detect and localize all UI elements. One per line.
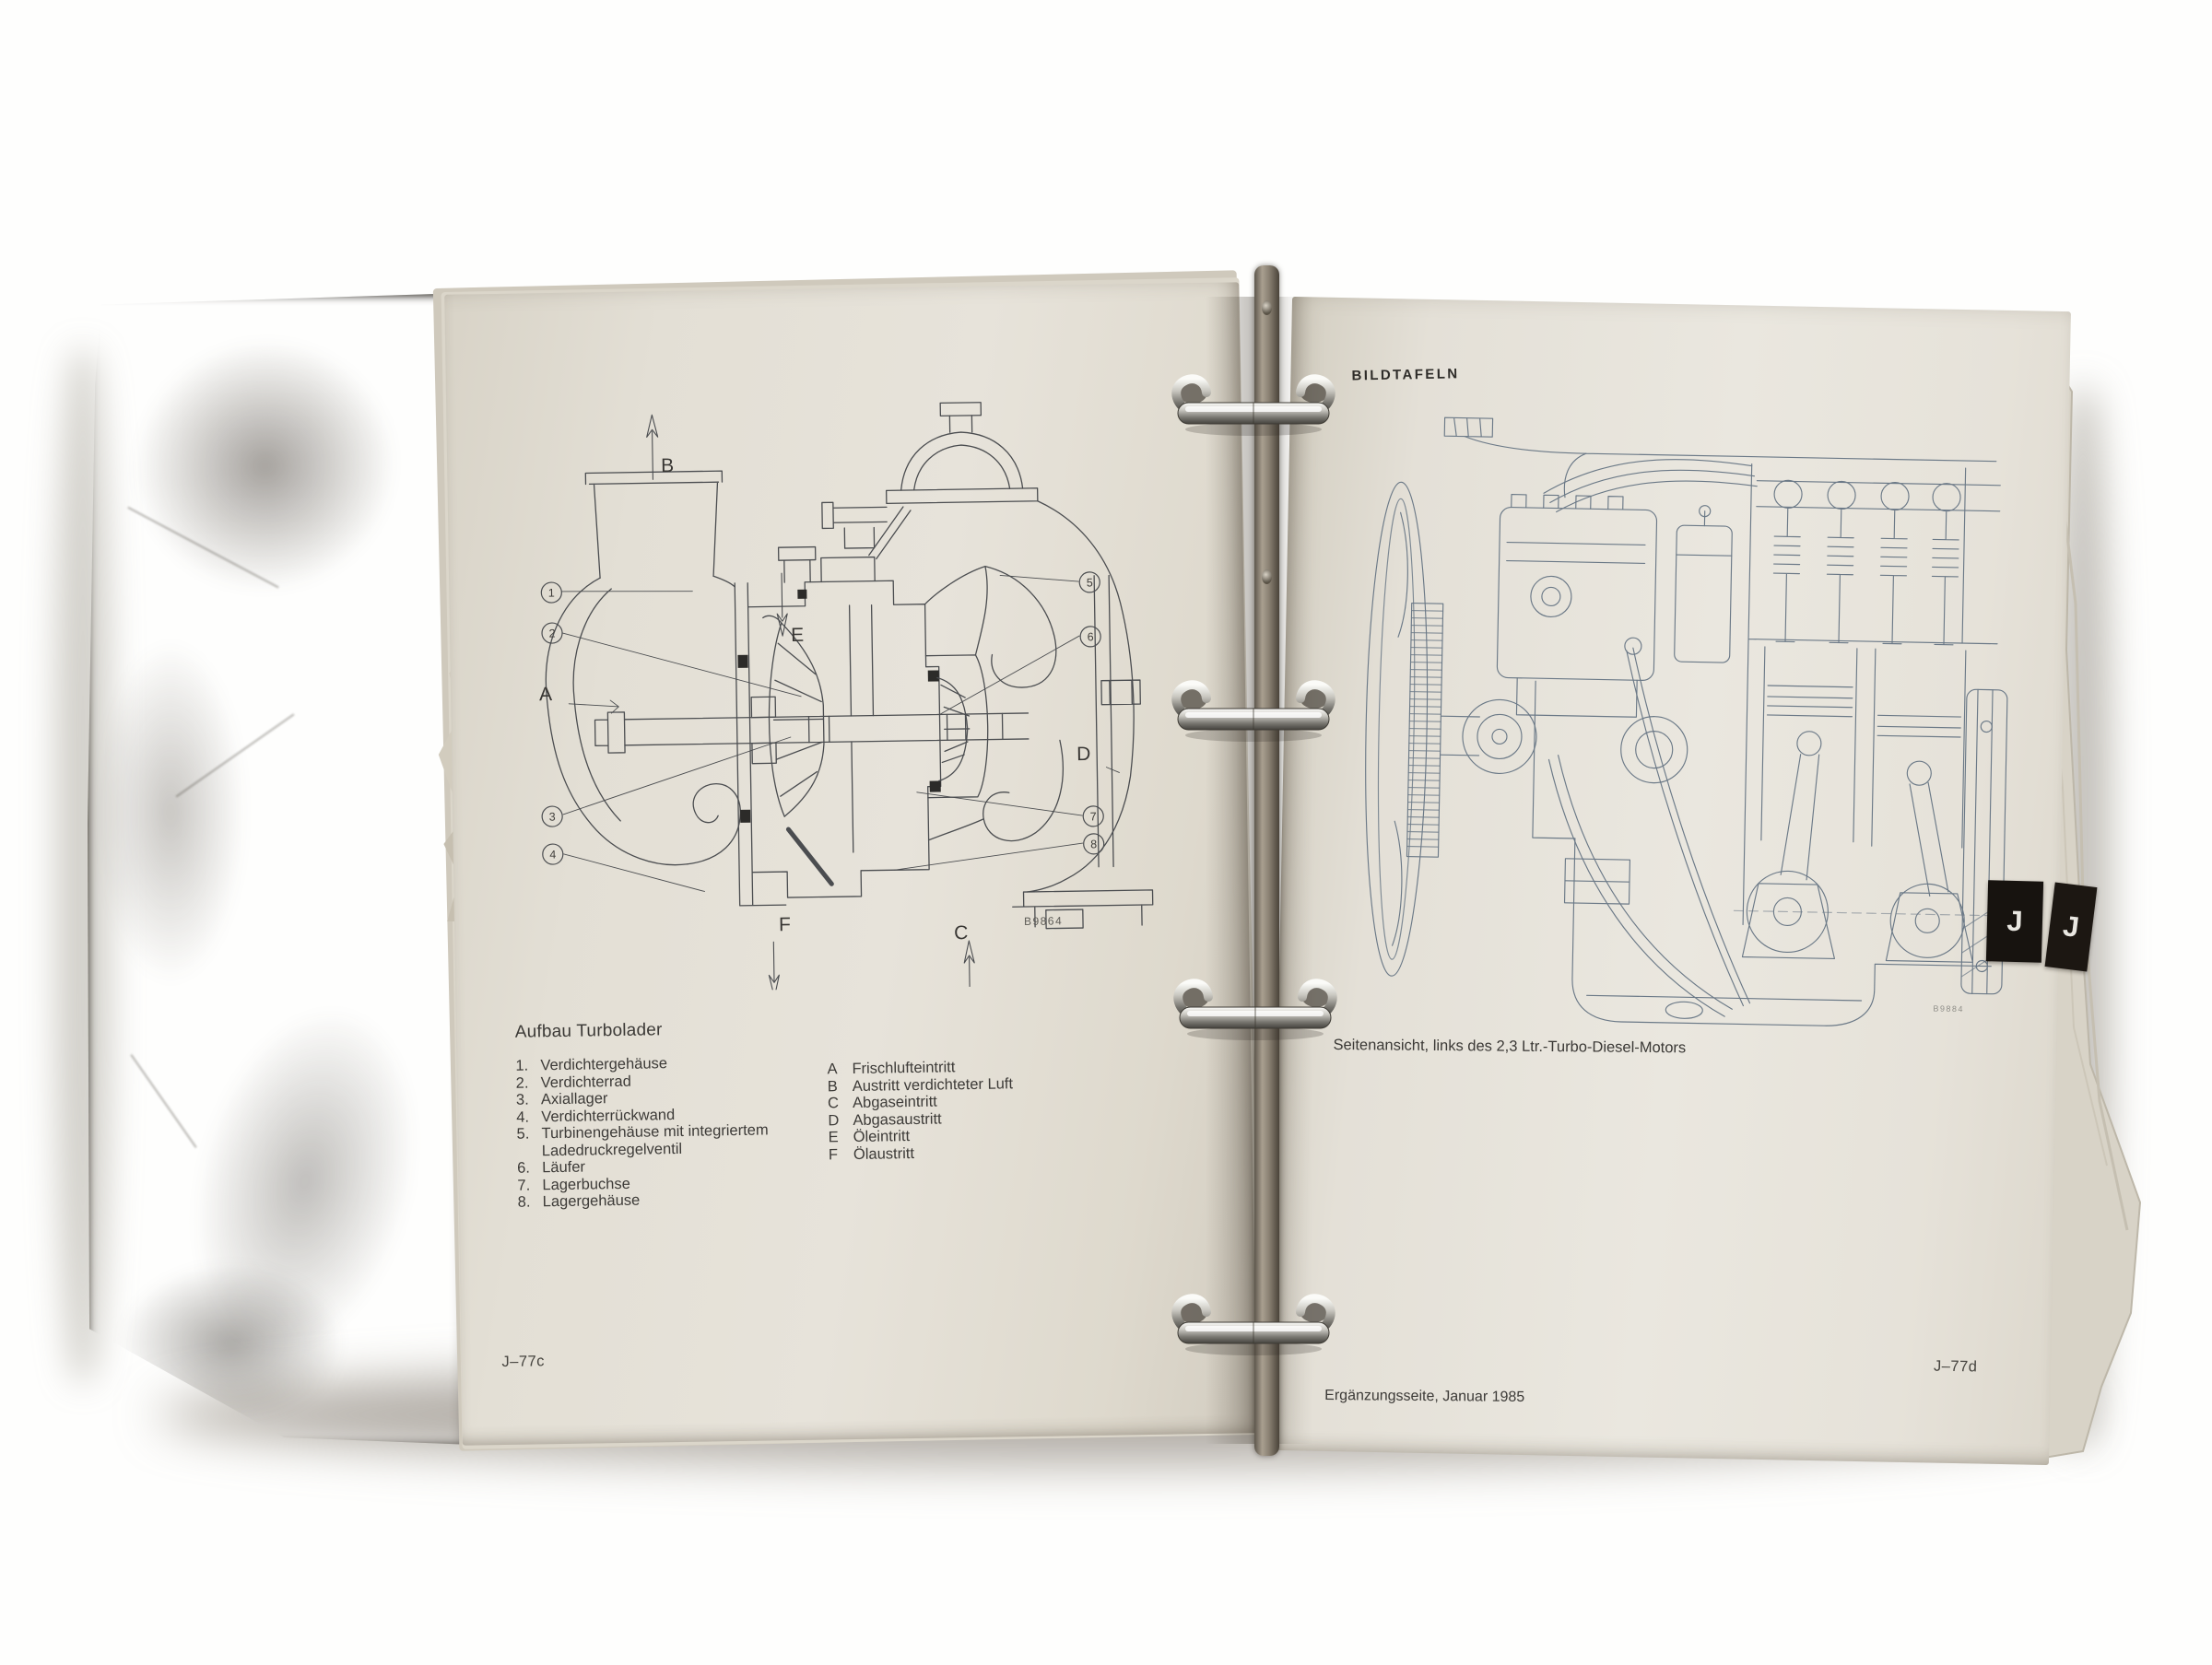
spine-rivet bbox=[1262, 300, 1272, 315]
binder-ring bbox=[1158, 1292, 1349, 1362]
arrow-F-down bbox=[769, 942, 780, 994]
flow-label-C: C bbox=[954, 922, 969, 944]
compressor-inlet-duct bbox=[585, 471, 724, 578]
binder-cover bbox=[88, 293, 465, 1447]
callout-1: 1 bbox=[548, 587, 555, 600]
flow-label-B: B bbox=[661, 455, 674, 476]
index-tab-label: J bbox=[2006, 905, 2023, 938]
callout-2: 2 bbox=[548, 627, 555, 640]
fuel-filter bbox=[1675, 505, 1733, 662]
turbo-legend-letters: AFrischlufteintritt BAustritt verdichtet… bbox=[827, 1058, 1014, 1163]
binder-ring bbox=[1159, 977, 1351, 1047]
cover-crease bbox=[130, 1054, 196, 1148]
engine-cutaway-diagram: B9884 bbox=[1345, 401, 2020, 1040]
index-tab-label: J bbox=[2061, 909, 2081, 944]
turbo-legend-numbered: 1.Verdichtergehäuse 2.Verdichterrad 3.Ax… bbox=[515, 1053, 770, 1211]
ribbed-damper bbox=[1406, 604, 1481, 858]
cylinder-1 bbox=[1760, 647, 1857, 881]
turbocharger-cross-section-diagram: 1 2 3 4 5 6 7 8 A B C D E F B9864 bbox=[500, 387, 1163, 994]
compressor-housing bbox=[544, 547, 821, 909]
cover-stain bbox=[118, 1262, 345, 1424]
diagram-leader-lines bbox=[559, 573, 1121, 893]
cylinder-head-top bbox=[1443, 417, 2002, 512]
index-tab-j: J bbox=[1986, 880, 2043, 963]
drawing-code-left: B9864 bbox=[1024, 914, 1063, 928]
photo-scene: 1 2 3 4 5 6 7 8 A B C D E F B9864 Aufbau… bbox=[0, 0, 2212, 1665]
seal-blocks bbox=[736, 587, 941, 822]
flow-label-D: D bbox=[1077, 744, 1091, 765]
callout-3: 3 bbox=[549, 811, 556, 824]
page-number-left: J–77c bbox=[501, 1353, 545, 1371]
callout-5: 5 bbox=[1087, 576, 1093, 589]
footer-supplement-note: Ergänzungsseite, Januar 1985 bbox=[1324, 1388, 1524, 1406]
left-page: 1 2 3 4 5 6 7 8 A B C D E F B9864 Aufbau… bbox=[444, 282, 1257, 1445]
turbo-diagram-title: Aufbau Turbolader bbox=[515, 1020, 663, 1043]
flow-label-F: F bbox=[779, 914, 791, 935]
flow-arrows bbox=[646, 410, 974, 994]
flow-label-E: E bbox=[791, 625, 804, 646]
legend-row: 8.Lagergehäuse bbox=[518, 1190, 770, 1211]
cylinder-2 bbox=[1871, 649, 1966, 897]
arrow-C-up bbox=[964, 941, 975, 992]
callout-8: 8 bbox=[1090, 838, 1097, 850]
callout-7: 7 bbox=[1090, 810, 1097, 823]
drawing-code-right: B9884 bbox=[1933, 1003, 1964, 1014]
hose bbox=[1544, 755, 1736, 1016]
legend-row: BAustritt verdichteter Luft bbox=[828, 1075, 1014, 1096]
bearing-housing bbox=[747, 556, 943, 897]
flow-label-A: A bbox=[539, 684, 552, 705]
callout-4: 4 bbox=[549, 849, 556, 862]
cover-stain bbox=[112, 318, 417, 614]
cover-stain bbox=[95, 639, 246, 986]
binder-ring bbox=[1158, 678, 1349, 748]
callout-6: 6 bbox=[1088, 630, 1094, 643]
circled-numbers bbox=[538, 572, 1104, 865]
binder-spine-bar bbox=[1254, 265, 1279, 1456]
wastegate-actuator bbox=[820, 402, 1039, 560]
spine-rivet bbox=[1262, 569, 1272, 584]
oil-filter-round bbox=[1620, 716, 1688, 783]
arrow-E-down bbox=[777, 573, 788, 636]
oil-pan bbox=[1562, 838, 1994, 1029]
dipstick-tube bbox=[1619, 648, 1756, 1006]
figure-caption: Seitenansicht, links des 2,3 Ltr.-Turbo-… bbox=[1333, 1037, 1686, 1057]
arrow-B-up bbox=[646, 415, 658, 479]
legend-row: FÖlaustritt bbox=[829, 1143, 1015, 1164]
crank-pulley bbox=[1462, 699, 1537, 775]
valve-springs bbox=[1772, 509, 1959, 645]
page-number-right: J–77d bbox=[1934, 1358, 1978, 1377]
injection-pump bbox=[1494, 494, 1657, 839]
binder-ring bbox=[1158, 372, 1349, 442]
right-page: BILDTAFELN bbox=[1270, 297, 2071, 1465]
section-header: BILDTAFELN bbox=[1351, 366, 1459, 383]
